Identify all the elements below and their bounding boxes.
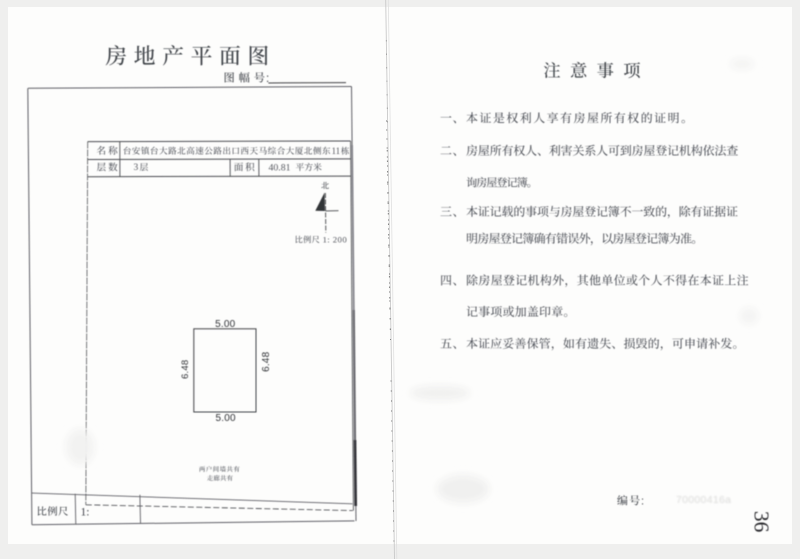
svg-text:3: 3 [134, 163, 139, 173]
svg-text:1: 200: 1: 200 [323, 235, 348, 245]
svg-text:6.48: 6.48 [180, 360, 191, 379]
svg-text:5.00: 5.00 [215, 413, 236, 424]
svg-text::: : [641, 496, 644, 508]
svg-text:11: 11 [332, 146, 341, 156]
svg-text:36: 36 [750, 511, 774, 533]
svg-text:1:: 1: [81, 507, 90, 519]
svg-text:70000416a: 70000416a [676, 494, 731, 506]
svg-text:6.48: 6.48 [261, 351, 272, 372]
svg-text:5.00: 5.00 [215, 319, 236, 330]
svg-text:40.81: 40.81 [269, 162, 291, 173]
